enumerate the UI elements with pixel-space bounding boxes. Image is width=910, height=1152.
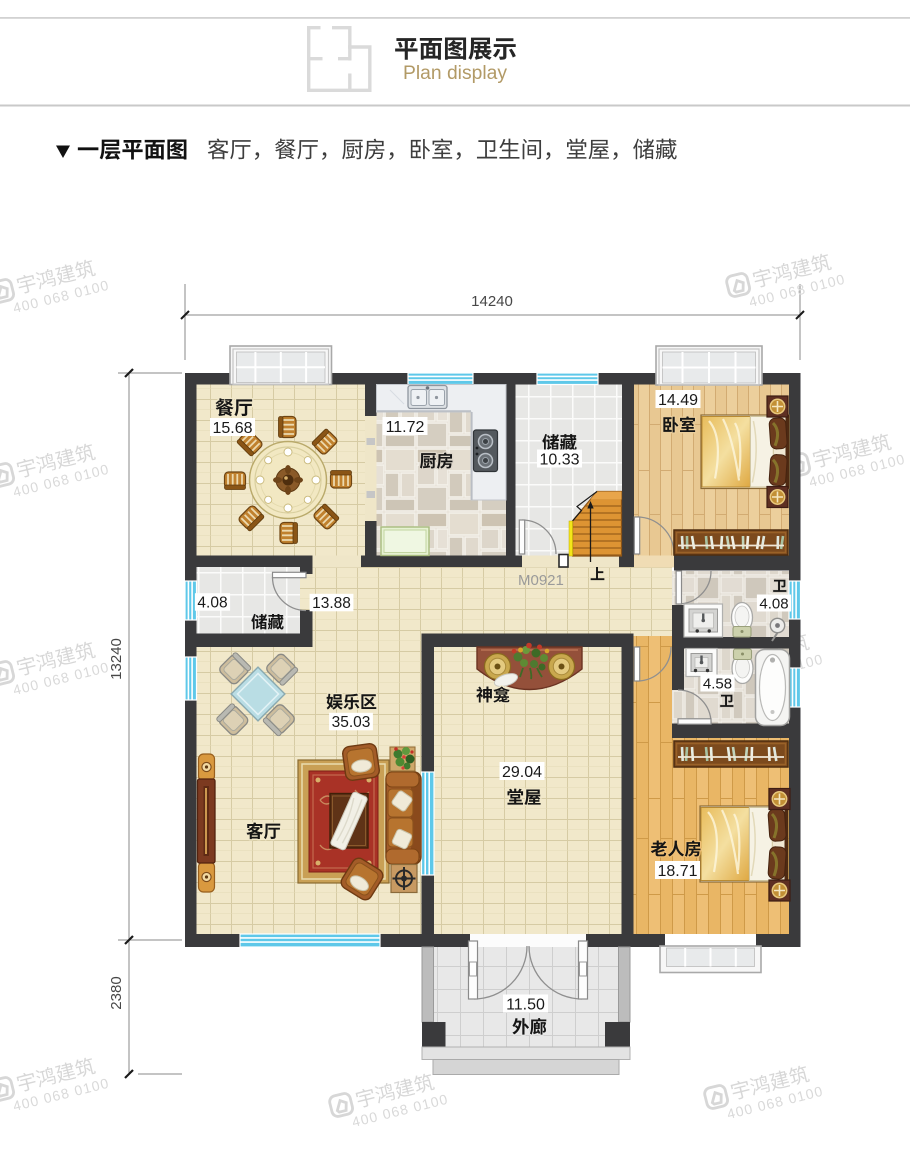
svg-text:35.03: 35.03 xyxy=(332,714,371,731)
svg-text:18.71: 18.71 xyxy=(657,863,697,880)
svg-text:11.72: 11.72 xyxy=(386,419,425,436)
svg-text:M0921: M0921 xyxy=(518,572,564,589)
svg-text:Plan display: Plan display xyxy=(403,63,507,84)
svg-text:15.68: 15.68 xyxy=(212,420,252,437)
svg-text:2380: 2380 xyxy=(108,976,125,1009)
svg-text:4.08: 4.08 xyxy=(759,595,788,612)
svg-text:29.04: 29.04 xyxy=(502,764,542,781)
svg-text:13.88: 13.88 xyxy=(312,595,351,612)
svg-text:4.08: 4.08 xyxy=(197,595,227,612)
svg-text:4.58: 4.58 xyxy=(703,675,732,692)
svg-text:11.50: 11.50 xyxy=(506,996,545,1013)
svg-text:10.33: 10.33 xyxy=(539,451,579,468)
svg-text:14240: 14240 xyxy=(471,293,513,310)
svg-text:14.49: 14.49 xyxy=(658,392,698,409)
